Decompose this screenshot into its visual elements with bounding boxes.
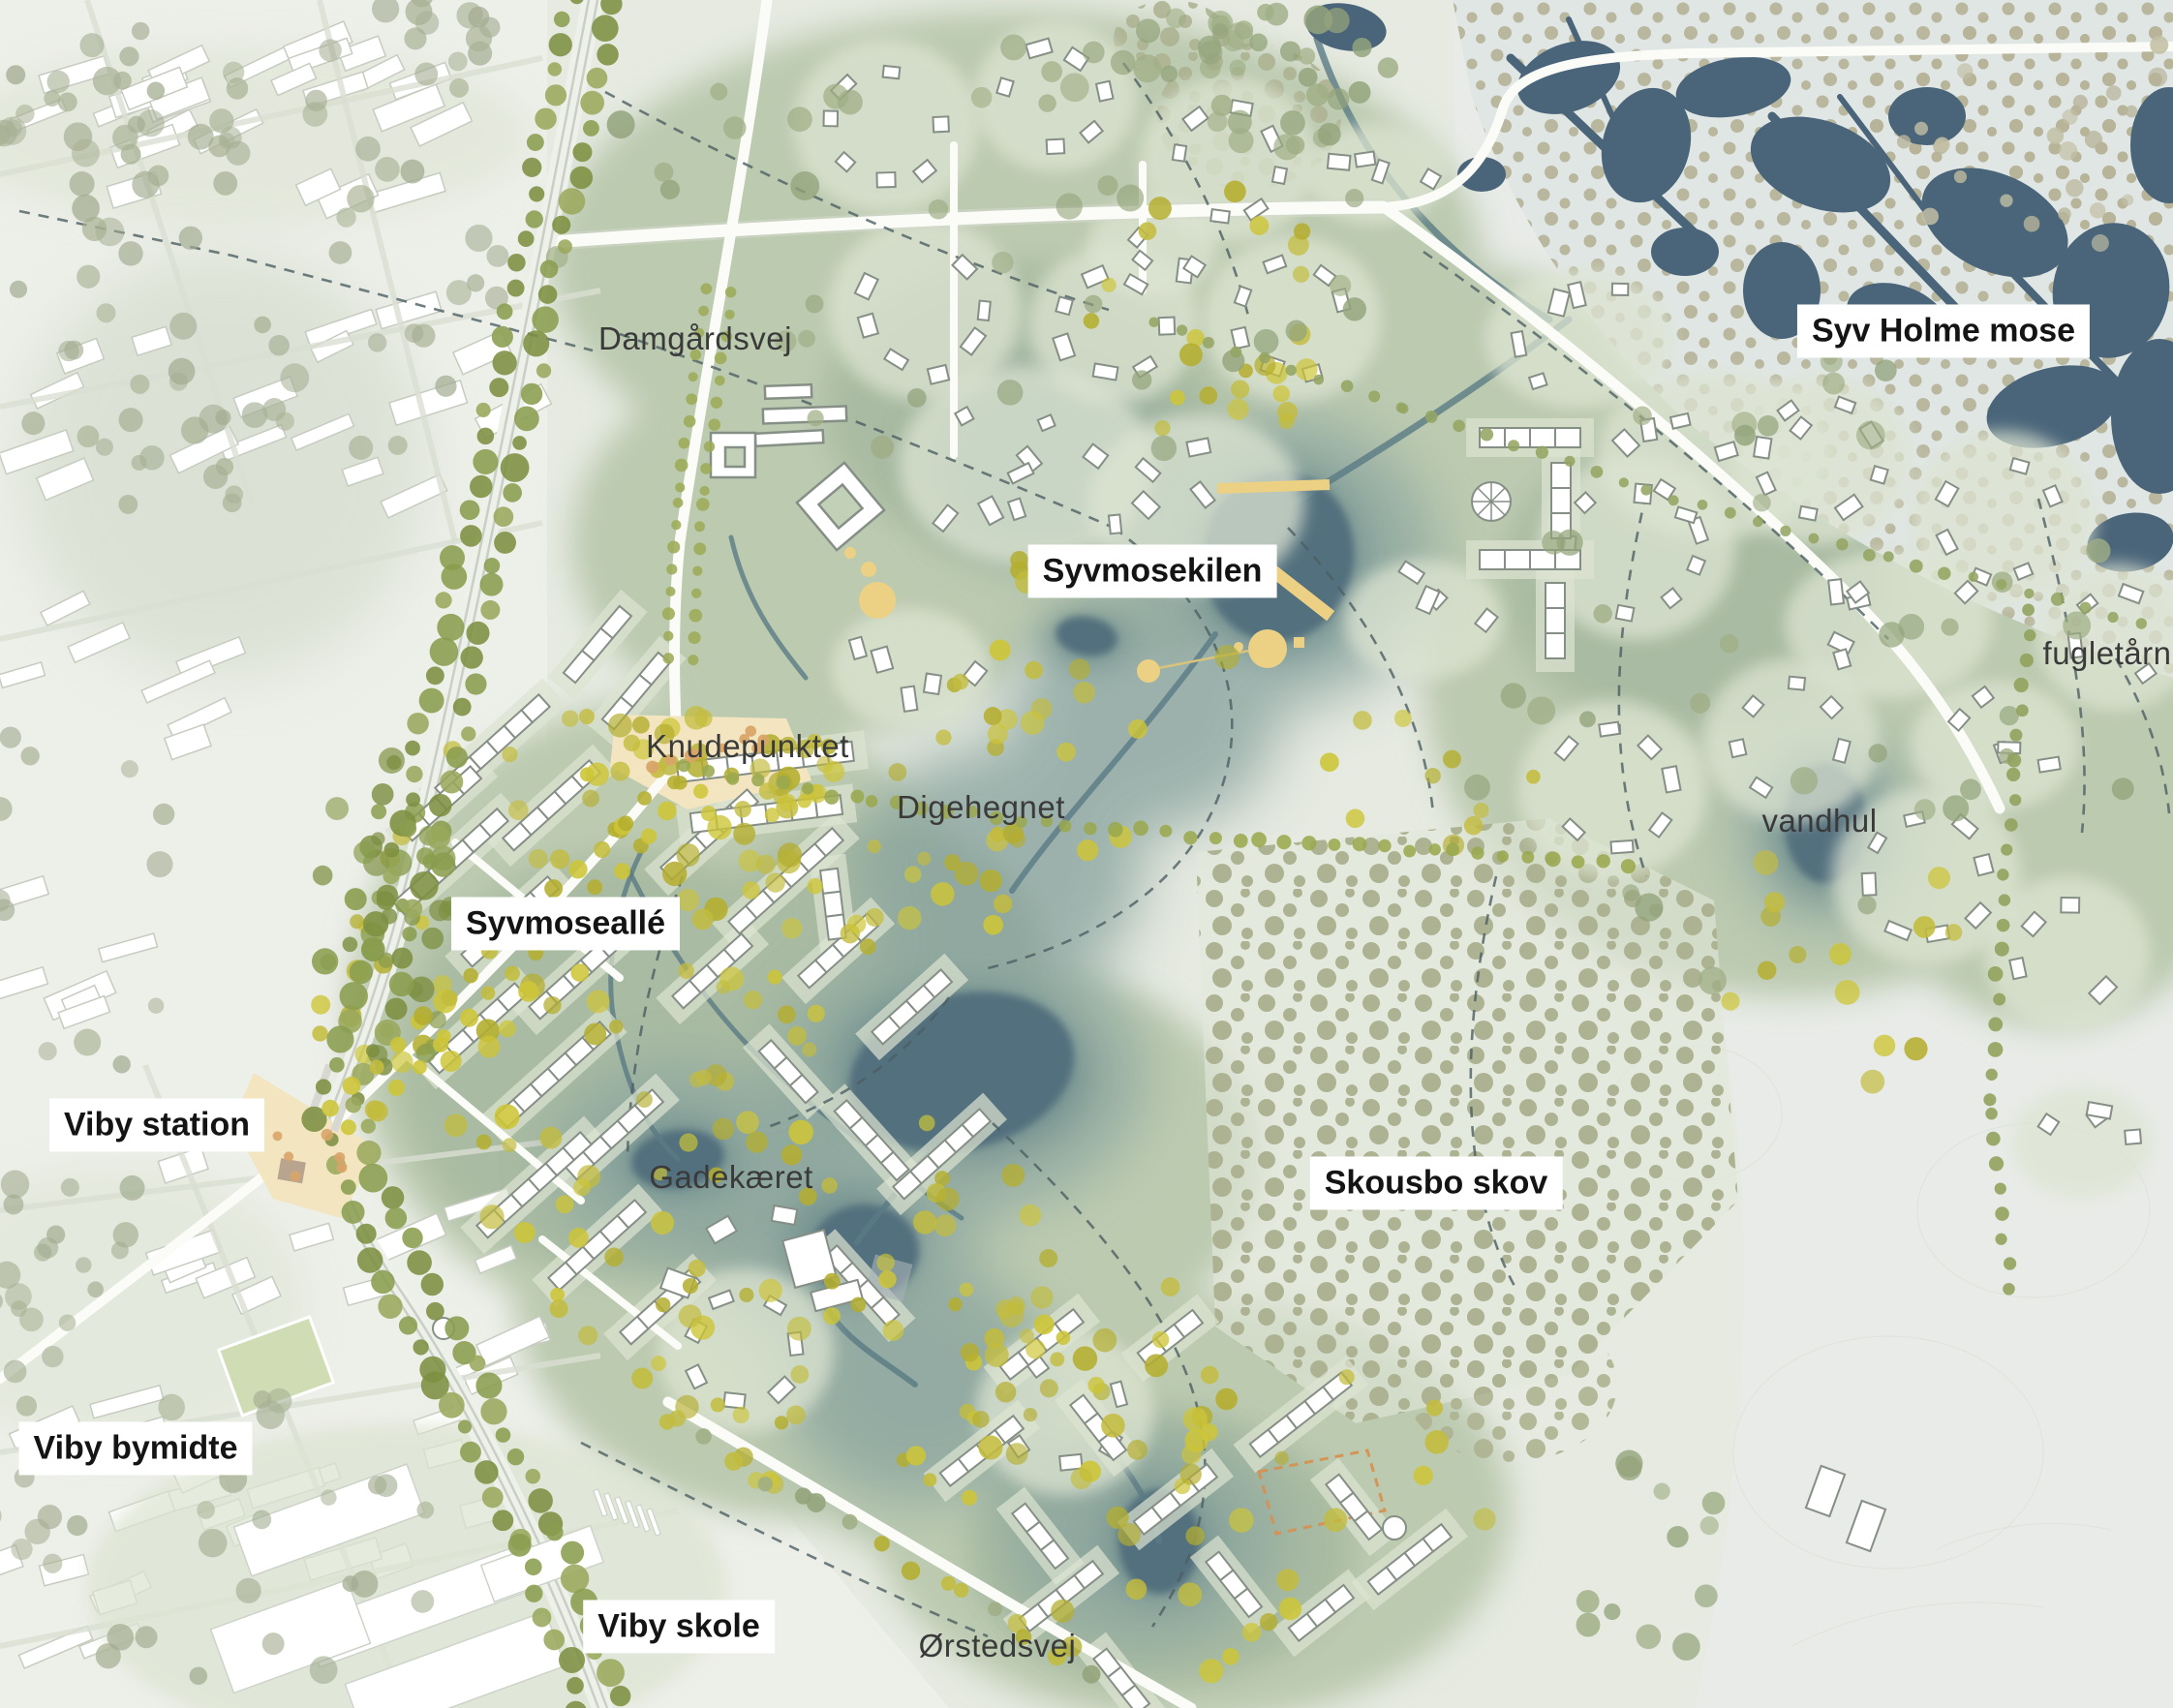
- map-label-knudepunktet: Knudepunktet: [646, 728, 849, 765]
- map-label-damgaardsvej: Damgårdsvej: [598, 320, 792, 357]
- map-label-fugletaarn: fugletårn: [2043, 635, 2172, 672]
- map-label-viby-skole: Viby skole: [583, 1600, 775, 1653]
- map-label-vandhul: vandhul: [1761, 803, 1877, 839]
- map-label-viby-bymidte: Viby bymidte: [19, 1421, 253, 1475]
- map-label-oerstedsvej: Ørstedsvej: [919, 1628, 1077, 1664]
- map-label-syvmosealle: Syvmoseallé: [451, 897, 680, 950]
- map-label-syvmosekilen: Syvmosekilen: [1028, 544, 1277, 597]
- map-canvas: [0, 0, 2173, 1708]
- map-label-skousbo-skov: Skousbo skov: [1310, 1156, 1563, 1209]
- map-label-viby-station: Viby station: [49, 1098, 264, 1151]
- masterplan-map: Damgårdsvej Syv Holme mose Syvmosekilen …: [0, 0, 2173, 1708]
- map-label-digehegnet: Digehegnet: [897, 789, 1065, 826]
- map-label-syv-holme-mose: Syv Holme mose: [1797, 304, 2090, 357]
- map-label-gadekaeret: Gadekæret: [649, 1159, 813, 1196]
